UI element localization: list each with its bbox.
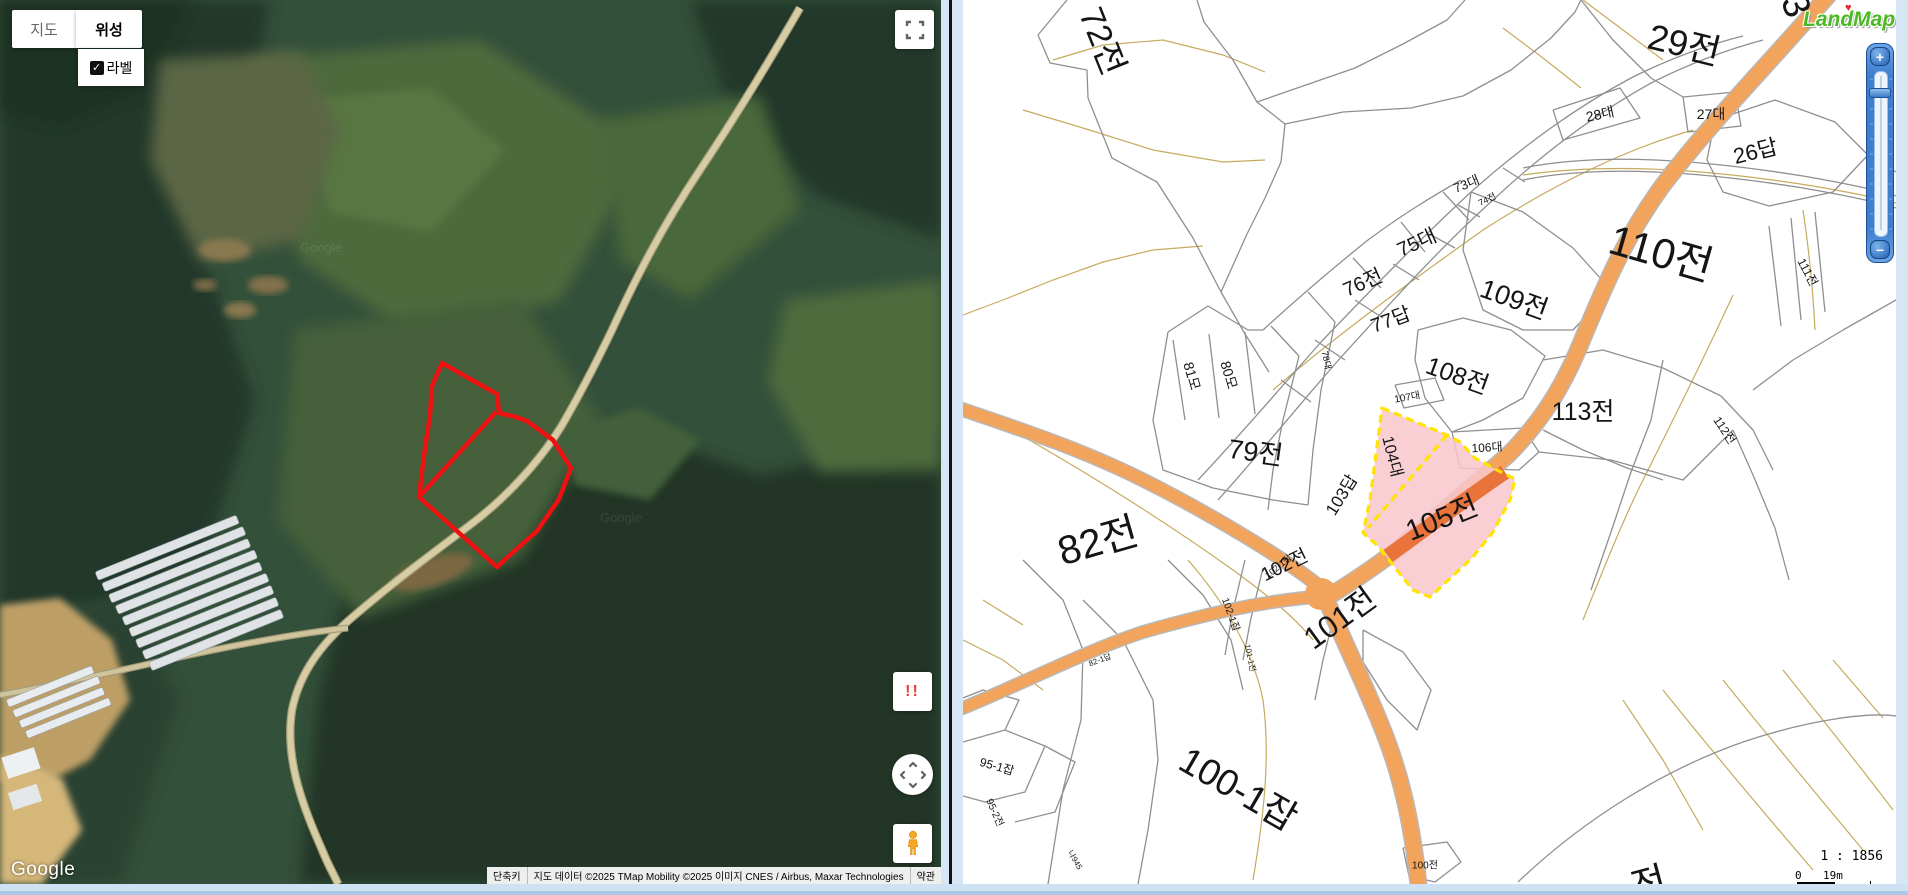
panel-divider xyxy=(949,0,952,884)
page-bottom-edge xyxy=(0,884,1908,895)
scale-zero-label: 0 xyxy=(1795,869,1802,882)
pegman-icon xyxy=(901,830,925,858)
google-logo: Google xyxy=(11,859,75,881)
heart-icon: ♥ xyxy=(1845,2,1852,14)
map-type-control: 지도 위성 xyxy=(12,10,142,48)
zoom-groove xyxy=(1880,76,1882,230)
zoom-ticks xyxy=(1870,78,1873,230)
satellite-imagery: Google Google xyxy=(0,0,941,884)
landmap-logo: LandMap ♥ xyxy=(1803,8,1895,32)
terms-link[interactable]: 약관 xyxy=(910,867,941,884)
satellite-button[interactable]: 위성 xyxy=(76,10,142,48)
zoom-ticks xyxy=(1889,78,1892,230)
cadastral-map-panel[interactable]: 72전29전28대27대26답110전111전73대74전75대76전77답78… xyxy=(963,0,1896,884)
cadastral-drawing xyxy=(963,0,1896,884)
pegman-button[interactable] xyxy=(893,824,932,863)
warning-badge: !! xyxy=(905,683,920,701)
attribution-bar: 단축키 지도 데이터 ©2025 TMap Mobility ©2025 이미지… xyxy=(487,867,941,884)
fullscreen-button[interactable] xyxy=(895,10,934,49)
scale-distance-label: 19m xyxy=(1823,869,1843,882)
pan-control[interactable] xyxy=(892,754,933,795)
zoom-slider-control[interactable]: + − xyxy=(1866,43,1894,263)
map-button[interactable]: 지도 xyxy=(12,10,76,48)
zoom-track[interactable] xyxy=(1874,71,1888,237)
labels-toggle[interactable]: ✓ 라벨 xyxy=(78,49,144,86)
checkbox-checked-icon[interactable]: ✓ xyxy=(90,61,104,75)
pan-arrows-icon xyxy=(896,758,930,792)
satellite-map-panel[interactable]: Google Google 지도 위성 ✓ 라벨 !! xyxy=(0,0,941,884)
map-watermark: Google xyxy=(300,240,342,255)
scale-ratio: 1 : 1856 xyxy=(1791,849,1883,864)
map-watermark: Google xyxy=(600,510,642,525)
map-data-attribution: 지도 데이터 ©2025 TMap Mobility ©2025 이미지 CNE… xyxy=(527,867,910,884)
scale-bar: 0 19m xyxy=(1795,869,1875,884)
fullscreen-icon xyxy=(904,19,926,41)
zoom-handle[interactable] xyxy=(1869,88,1891,98)
keyboard-shortcuts-link[interactable]: 단축키 xyxy=(487,867,527,884)
labels-checkbox-label: 라벨 xyxy=(107,58,133,78)
zoom-out-button[interactable]: − xyxy=(1870,240,1890,259)
zoom-in-button[interactable]: + xyxy=(1870,47,1890,66)
warning-button[interactable]: !! xyxy=(893,672,932,711)
